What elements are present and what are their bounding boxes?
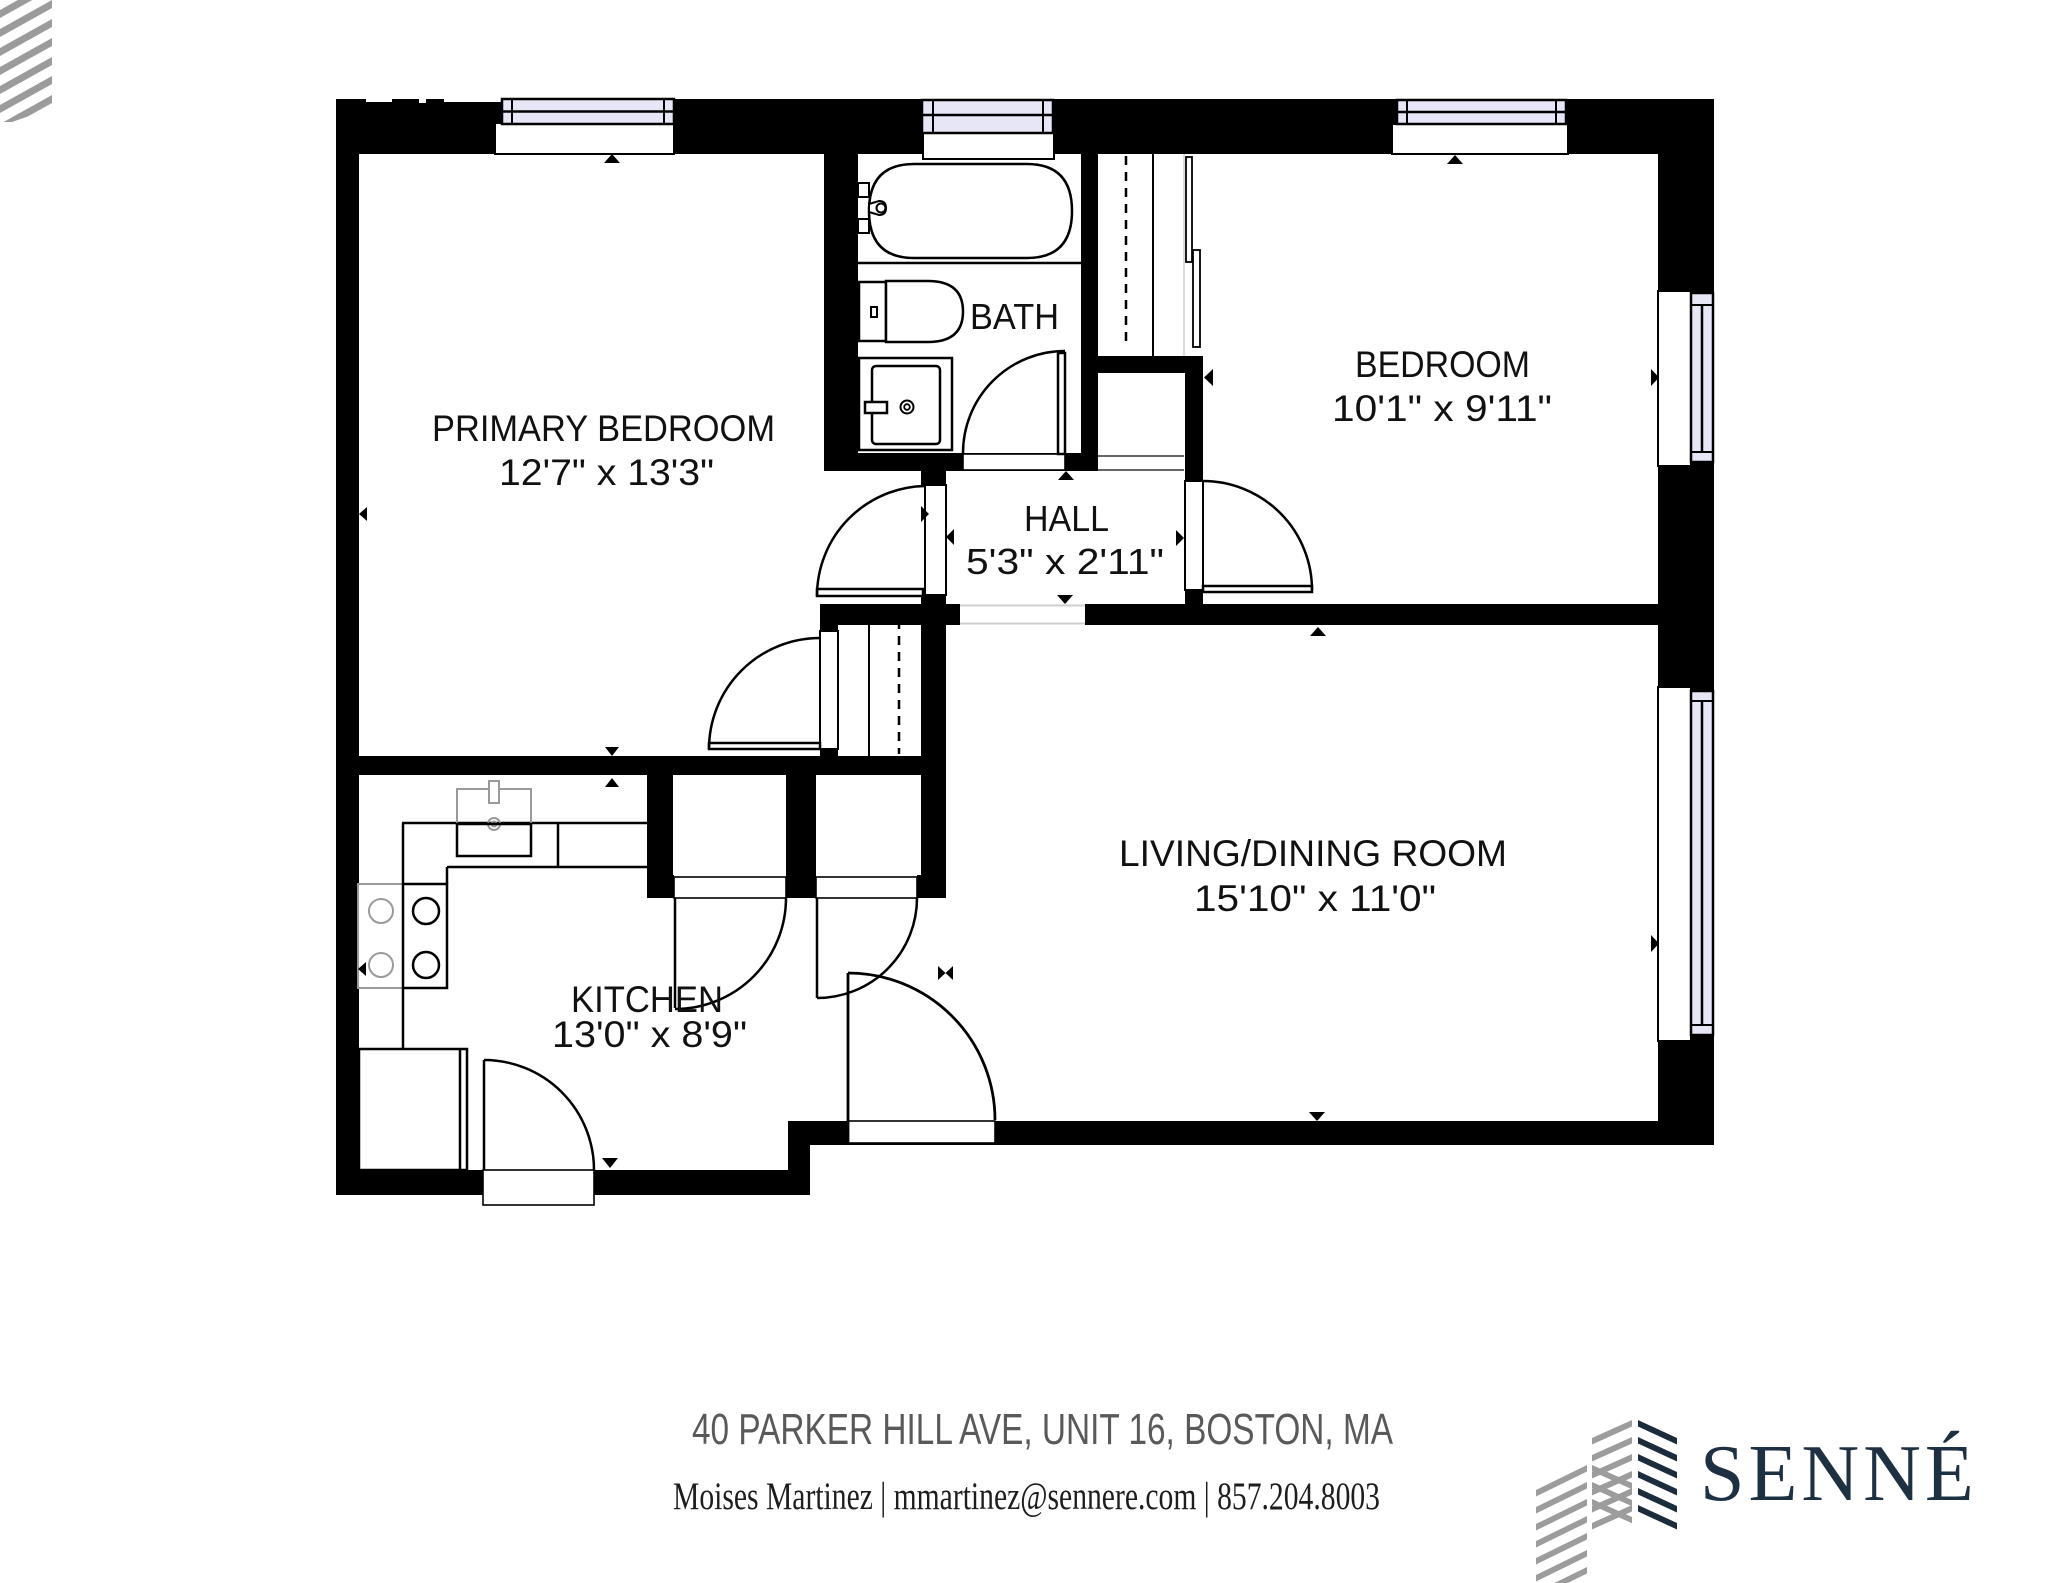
svg-text:10'1" x 9'11": 10'1" x 9'11" xyxy=(1332,388,1552,429)
svg-text:Moises Martinez | mmartinez@se: Moises Martinez | mmartinez@sennere.com … xyxy=(673,1475,1380,1518)
svg-text:BEDROOM: BEDROOM xyxy=(1355,344,1530,385)
svg-text:5'3" x 2'11": 5'3" x 2'11" xyxy=(966,541,1164,582)
svg-text:40 PARKER HILL AVE, UNIT 16, B: 40 PARKER HILL AVE, UNIT 16, BOSTON, MA xyxy=(692,1405,1393,1454)
svg-text:PRIMARY BEDROOM: PRIMARY BEDROOM xyxy=(432,408,775,449)
svg-text:15'10" x 11'0": 15'10" x 11'0" xyxy=(1194,878,1436,919)
svg-text:13'0" x 8'9": 13'0" x 8'9" xyxy=(552,1014,747,1055)
svg-text:HALL: HALL xyxy=(1024,498,1109,539)
svg-text:12'7" x 13'3": 12'7" x 13'3" xyxy=(499,452,714,493)
svg-text:LIVING/DINING ROOM: LIVING/DINING ROOM xyxy=(1119,833,1507,874)
svg-text:SENNÉ: SENNÉ xyxy=(1700,1430,1978,1518)
svg-text:BATH: BATH xyxy=(970,296,1059,337)
